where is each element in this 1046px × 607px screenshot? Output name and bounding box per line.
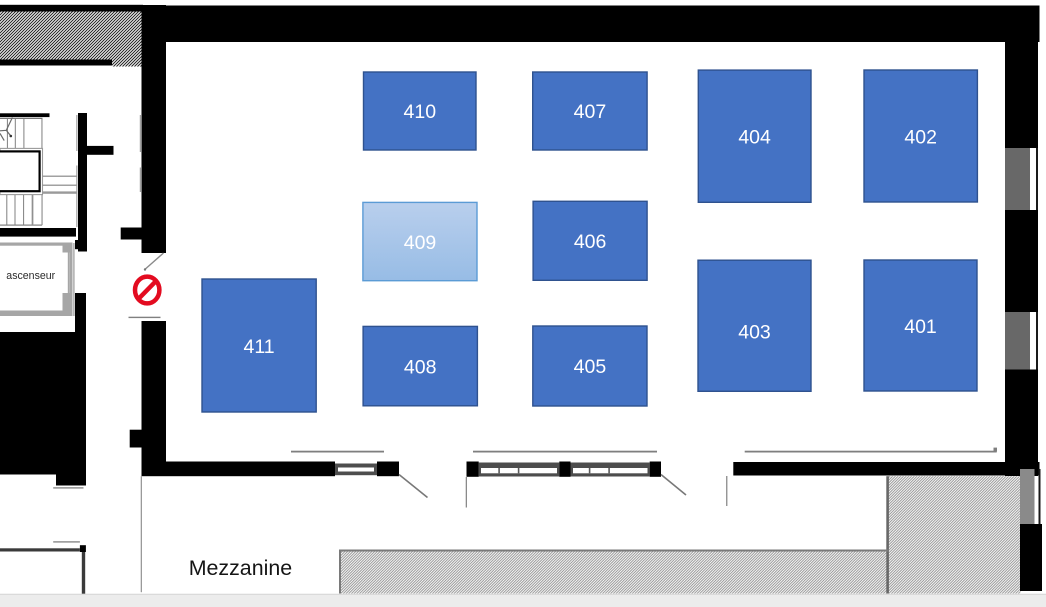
svg-text:404: 404 <box>738 126 771 148</box>
svg-text:407: 407 <box>574 101 607 123</box>
svg-text:409: 409 <box>404 232 437 254</box>
svg-text:410: 410 <box>404 101 437 123</box>
svg-text:405: 405 <box>574 356 607 378</box>
svg-text:406: 406 <box>574 231 607 253</box>
svg-text:Mezzanine: Mezzanine <box>189 556 292 580</box>
svg-text:403: 403 <box>738 322 771 344</box>
svg-text:408: 408 <box>404 356 437 378</box>
svg-text:ascenseur: ascenseur <box>6 270 55 282</box>
svg-text:411: 411 <box>244 336 275 358</box>
svg-text:401: 401 <box>904 316 937 338</box>
svg-text:402: 402 <box>904 126 937 148</box>
